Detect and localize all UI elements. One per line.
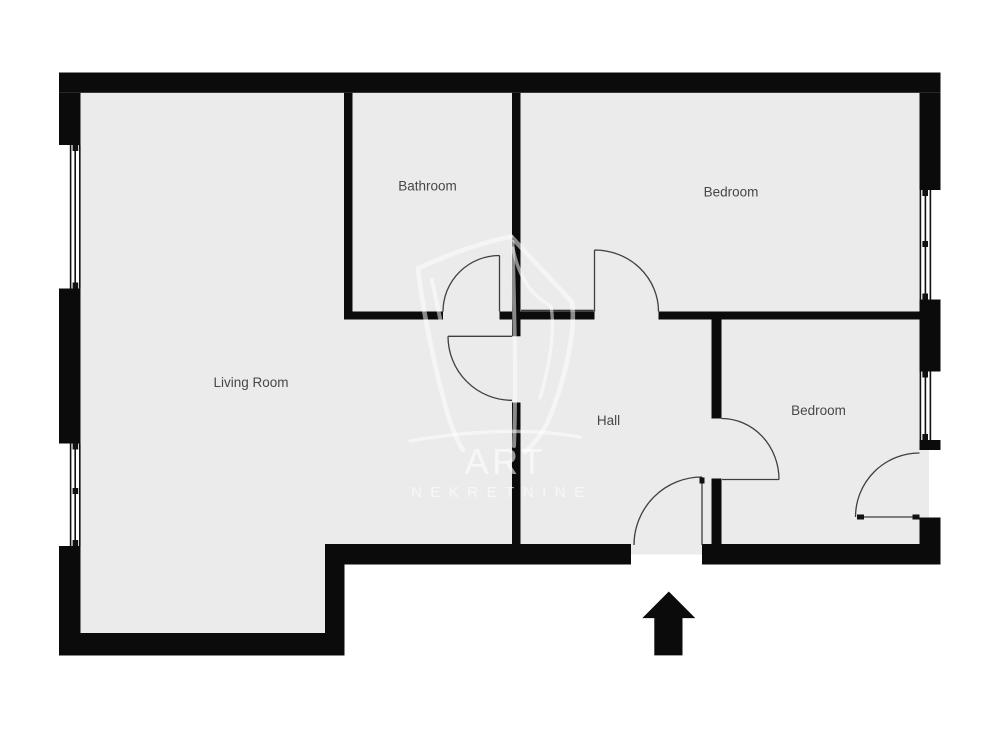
svg-text:Bedroom: Bedroom [704, 185, 759, 200]
svg-text:NEKRETNINE: NEKRETNINE [411, 484, 593, 501]
svg-text:Hall: Hall [597, 413, 620, 428]
svg-text:ART: ART [465, 441, 547, 482]
svg-text:Living Room: Living Room [213, 375, 288, 390]
svg-text:Bedroom: Bedroom [791, 403, 846, 418]
svg-text:Bathroom: Bathroom [398, 179, 457, 194]
